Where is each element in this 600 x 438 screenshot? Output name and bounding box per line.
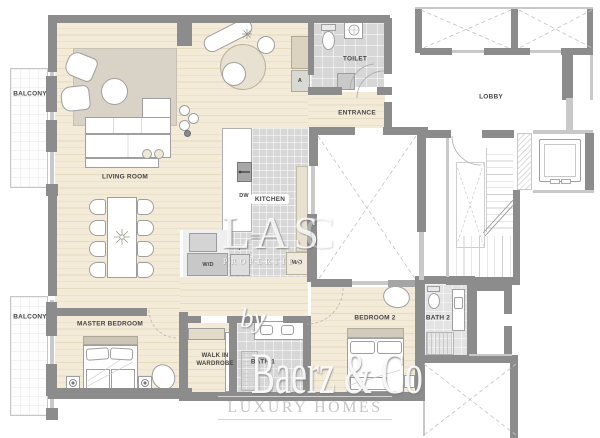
- watermark-center-name-faint: C: [304, 206, 340, 259]
- watermark-brand: by Baerz & Co LUXURY HOMES: [218, 300, 392, 430]
- label-kitchen: KITCHEN: [251, 194, 289, 204]
- watermark-center-sub: PROPERTIES: [223, 257, 305, 266]
- watermark-brand-tagline: LUXURY HOMES: [218, 399, 392, 417]
- stair-break-line: [483, 199, 516, 236]
- label-master-bedroom: MASTER BEDROOM: [77, 321, 143, 328]
- label-dishwasher: DW: [239, 193, 249, 199]
- floor-plan: BALCONY BALCONY LIVING ROOM KITCHEN DW f…: [0, 0, 600, 438]
- label-washer-dryer: W/D: [202, 262, 213, 268]
- label-bath-2: BATH 2: [426, 315, 450, 322]
- watermark-rule-bottom: [218, 419, 392, 420]
- nook-plant-icon: [242, 29, 252, 39]
- dishwasher-handle-icon: [239, 171, 250, 174]
- stair-landing-x: [456, 163, 484, 247]
- label-lobby: LOBBY: [479, 94, 503, 101]
- label-balcony-top: BALCONY: [13, 91, 47, 98]
- watermark-brand-name: Baerz & Co: [251, 340, 359, 407]
- label-entrance: ENTRANCE: [338, 110, 376, 117]
- toilet-sink-icon: [349, 25, 359, 35]
- label-balcony-bottom: BALCONY: [13, 314, 47, 321]
- label-living-room: LIVING ROOM: [102, 174, 148, 181]
- label-cabinet-a: A: [298, 78, 302, 84]
- label-toilet: TOILET: [343, 56, 367, 63]
- watermark-brand-by: by: [240, 303, 265, 334]
- table-flower-icon: [114, 229, 130, 245]
